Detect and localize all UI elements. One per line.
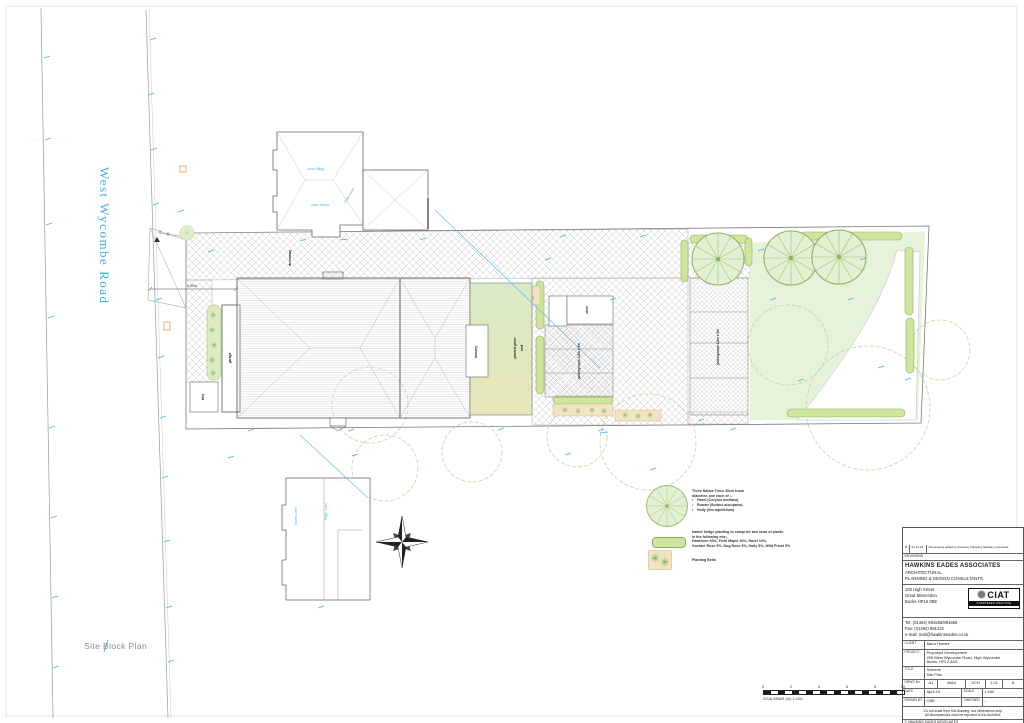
ciat-name: CIAT	[987, 590, 1009, 600]
drwg-number: 4664	[938, 680, 966, 688]
revision-date: 24.12.24	[910, 545, 927, 553]
title-row: TITLE Scheme Site Plan	[903, 667, 1023, 680]
drwg-sheet: 1.01	[986, 680, 1003, 688]
tick-0: 0	[762, 684, 764, 689]
label-green-roof-2: roof	[520, 344, 524, 351]
disclaimer: Do not scale from this drawing, use dime…	[903, 707, 1023, 720]
porch	[330, 418, 346, 426]
checked-label: CHECKED	[962, 698, 983, 706]
drwg-size: A1	[925, 680, 938, 688]
project-row: PROJECT Proposed Development 255 West Wy…	[903, 650, 1023, 667]
project-label: PROJECT	[903, 650, 925, 666]
legend-hedge-line1: Native hedge planting to comprise two ro…	[692, 530, 790, 535]
neighbour-building-north-garage	[363, 170, 428, 230]
scale-bar-ticks: 0 2 4 6 8 10	[763, 684, 913, 689]
client-label: CLIENT	[903, 641, 925, 649]
label-ridge-north: Ridge Level	[307, 167, 324, 171]
site-plan-canvas: 6.59m driveway garage bins store balcony…	[0, 0, 1024, 723]
legend-tree-text: Three Native Trees 30cm trunk diameter, …	[692, 489, 744, 512]
firm-block: HAWKINS EADES ASSOCIATES ARCHITECTURAL P…	[903, 561, 1023, 585]
legend-tree-icon	[645, 484, 689, 528]
title-value: Scheme Site Plan	[925, 667, 1023, 679]
contact-email: e-mail: mail@hawkinseades.co.uk	[905, 632, 1021, 638]
revision-note: Dimensions added to driveway following h…	[927, 545, 1023, 553]
tick-10: 10	[901, 684, 905, 689]
neighbour-building-north	[273, 132, 363, 237]
label-green-roof-1: planted green	[513, 338, 517, 359]
road	[41, 8, 171, 718]
ciat-subtitle: CHARTERED PRACTICE	[969, 601, 1019, 606]
label-bins: bins	[201, 394, 205, 401]
plan-title: Site Block Plan	[84, 641, 147, 651]
date-row: DATE April 24 SCALE 1:100	[903, 689, 1023, 698]
neighbour-building-south	[282, 478, 370, 600]
drawn-row: DRAWN BY OSE CHECKED -	[903, 698, 1023, 707]
firm-name: HAWKINS EADES ASSOCIATES	[905, 563, 1021, 570]
scale-bar: 0 2 4 6 8 10 SCALEBAR (m) 1:100.	[763, 684, 913, 701]
legend-hedge-line4: Guelder Rose 5%, Dog Rose 5%, Holly 5%, …	[692, 544, 790, 549]
revision-letter: A	[903, 545, 910, 553]
tick-6: 6	[846, 684, 848, 689]
client-row: CLIENT Baror Homes	[903, 641, 1023, 650]
road-name-label: West Wycombe Road	[96, 167, 112, 305]
label-driveway: driveway	[288, 249, 292, 266]
drawing-sheet: 6.59m driveway garage bins store balcony…	[0, 0, 1024, 723]
stamp-space	[903, 528, 1023, 545]
drawn-value: OSE	[925, 698, 962, 706]
date-value: April 24	[925, 689, 962, 697]
north-arrow-icon	[376, 516, 428, 568]
drwg-type: SCH	[966, 680, 986, 688]
legend-hedge-text: Native hedge planting to comprise two ro…	[692, 530, 790, 549]
checked-value: -	[983, 698, 1023, 706]
ciat-emblem-icon	[978, 591, 985, 598]
client-value: Baror Homes	[925, 641, 1023, 649]
scale-value: 1:100	[983, 689, 1023, 697]
project-value: Proposed Development 255 West Wycombe Ro…	[925, 650, 1023, 666]
dimension-text: 6.59m	[187, 284, 197, 288]
label-eaves-north: Eaves Level	[311, 203, 329, 207]
drwg-rev: A	[1003, 680, 1023, 688]
scale-bar-label: SCALEBAR (m) 1:100.	[763, 696, 913, 701]
disclaimer-line2: All discrepancies must be reported to th…	[905, 713, 1022, 717]
tick-2: 2	[790, 684, 792, 689]
title-block: A 24.12.24 Dimensions added to driveway …	[902, 527, 1024, 723]
legend-tree-item3: Holly (Ilex aquifolium)	[697, 508, 734, 513]
tick-8: 8	[874, 684, 876, 689]
legend-bed-icon	[648, 550, 672, 570]
firm-line3: PLANNING & DESIGN CONSULTANTS	[905, 576, 1021, 582]
label-store: store	[585, 306, 589, 314]
title-line2: Site Plan	[927, 673, 1022, 677]
project-line3: Bucks, HP12 3AS	[927, 660, 1022, 664]
legend-hedge-icon	[652, 537, 686, 548]
legend-beds-label: Planting Beds	[692, 558, 716, 563]
title-label: TITLE	[903, 667, 925, 679]
label-parking-rear: parking bays 2.8m x 5m	[716, 329, 720, 365]
label-garage: garage	[228, 353, 232, 364]
main-house	[222, 272, 532, 431]
tick-4: 4	[818, 684, 820, 689]
scale-label: SCALE	[962, 689, 983, 697]
legend-tree-line1: Three Native Trees 30cm trunk	[692, 489, 744, 494]
contact-block: Tel: (01494) 891555/891666 Fax: (01494) …	[903, 618, 1023, 641]
label-ridge-south: Ridge Level	[324, 503, 328, 520]
label-balcony: balcony	[474, 346, 478, 358]
revision-row: A 24.12.24 Dimensions added to driveway …	[903, 545, 1023, 554]
planting-legend: Three Native Trees 30cm trunk diameter, …	[645, 484, 830, 584]
scale-bar-strip	[763, 690, 905, 695]
drawing-number-row: DRWG No. A1 4664 SCH 1.01 A	[903, 680, 1023, 689]
revisions-label: REVISIONS	[903, 554, 1023, 561]
address-block: 100 High Street Great Missenden Bucks HP…	[903, 585, 1023, 618]
label-eaves-south: Eaves Level	[294, 507, 298, 525]
label-parking-front: parking bays 2.8m x 5m	[577, 343, 581, 379]
ciat-logo: CIAT CHARTERED PRACTICE	[968, 588, 1020, 609]
